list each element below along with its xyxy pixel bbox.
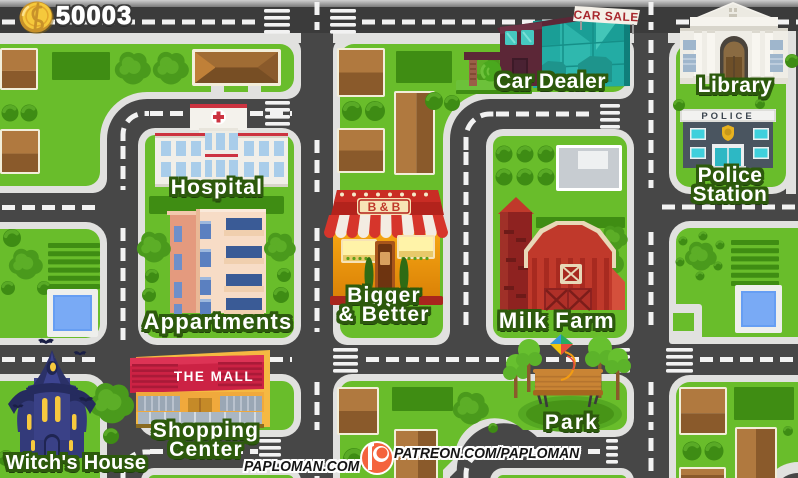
svg-text:CAR SALE: CAR SALE — [573, 8, 639, 25]
svg-text:THE MALL: THE MALL — [174, 369, 254, 384]
svg-text:B & B: B & B — [368, 200, 401, 214]
svg-text:POLICE: POLICE — [701, 111, 754, 122]
